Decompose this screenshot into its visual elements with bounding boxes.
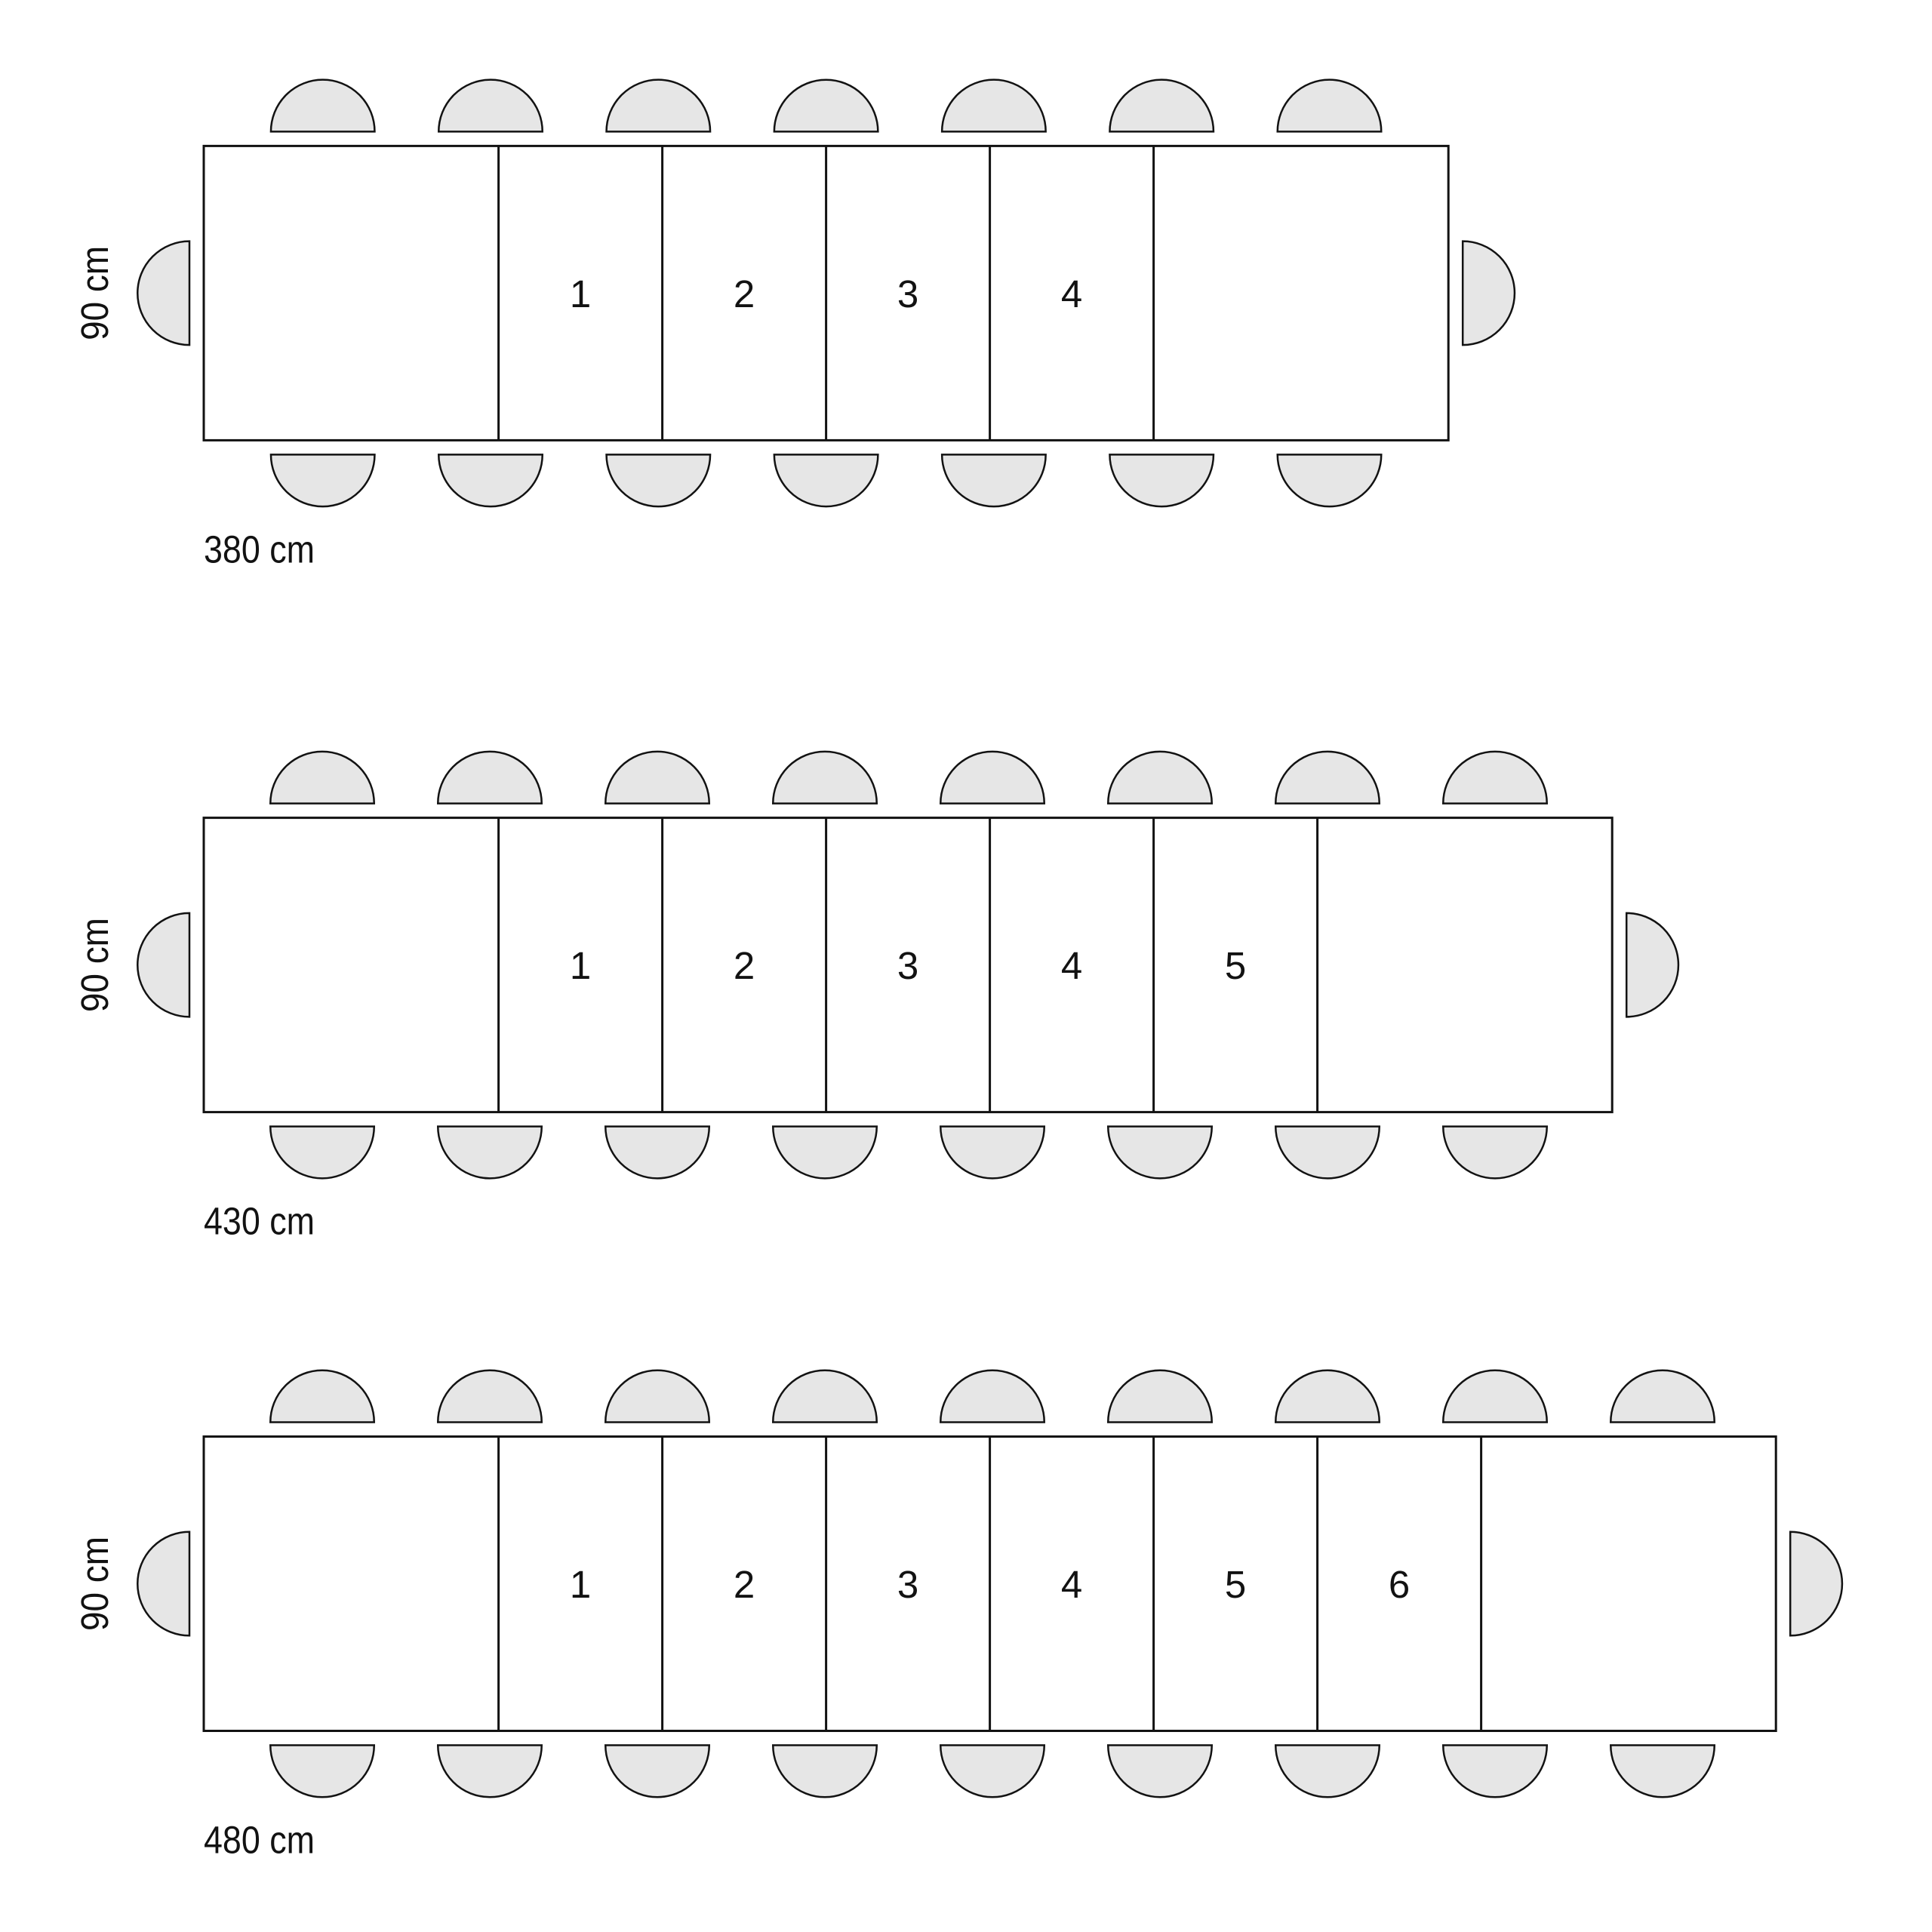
svg-text:1: 1: [570, 272, 591, 315]
svg-text:2: 2: [734, 1563, 755, 1606]
svg-text:3: 3: [897, 1563, 918, 1606]
svg-text:2: 2: [734, 944, 755, 987]
svg-text:480 cm: 480 cm: [204, 1818, 315, 1861]
svg-text:1: 1: [570, 944, 591, 987]
svg-text:430 cm: 430 cm: [204, 1200, 315, 1243]
svg-text:5: 5: [1225, 1563, 1246, 1606]
svg-text:5: 5: [1225, 944, 1246, 987]
svg-text:3: 3: [897, 272, 918, 315]
svg-text:3: 3: [897, 944, 918, 987]
svg-text:90 cm: 90 cm: [73, 1537, 116, 1631]
svg-text:90 cm: 90 cm: [73, 246, 116, 340]
svg-text:90 cm: 90 cm: [73, 918, 116, 1012]
svg-text:4: 4: [1061, 1563, 1082, 1606]
svg-text:1: 1: [570, 1563, 591, 1606]
svg-text:2: 2: [734, 272, 755, 315]
svg-text:4: 4: [1061, 944, 1082, 987]
svg-text:380 cm: 380 cm: [204, 528, 315, 571]
svg-text:4: 4: [1061, 272, 1082, 315]
svg-text:6: 6: [1389, 1563, 1410, 1606]
